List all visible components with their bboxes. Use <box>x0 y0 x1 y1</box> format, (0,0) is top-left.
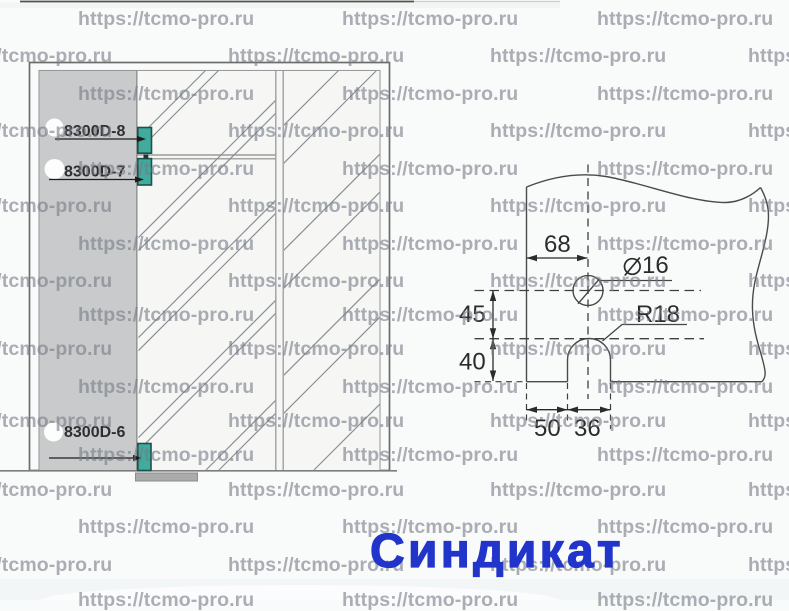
svg-text:40: 40 <box>459 349 486 376</box>
svg-text:68: 68 <box>544 231 571 258</box>
